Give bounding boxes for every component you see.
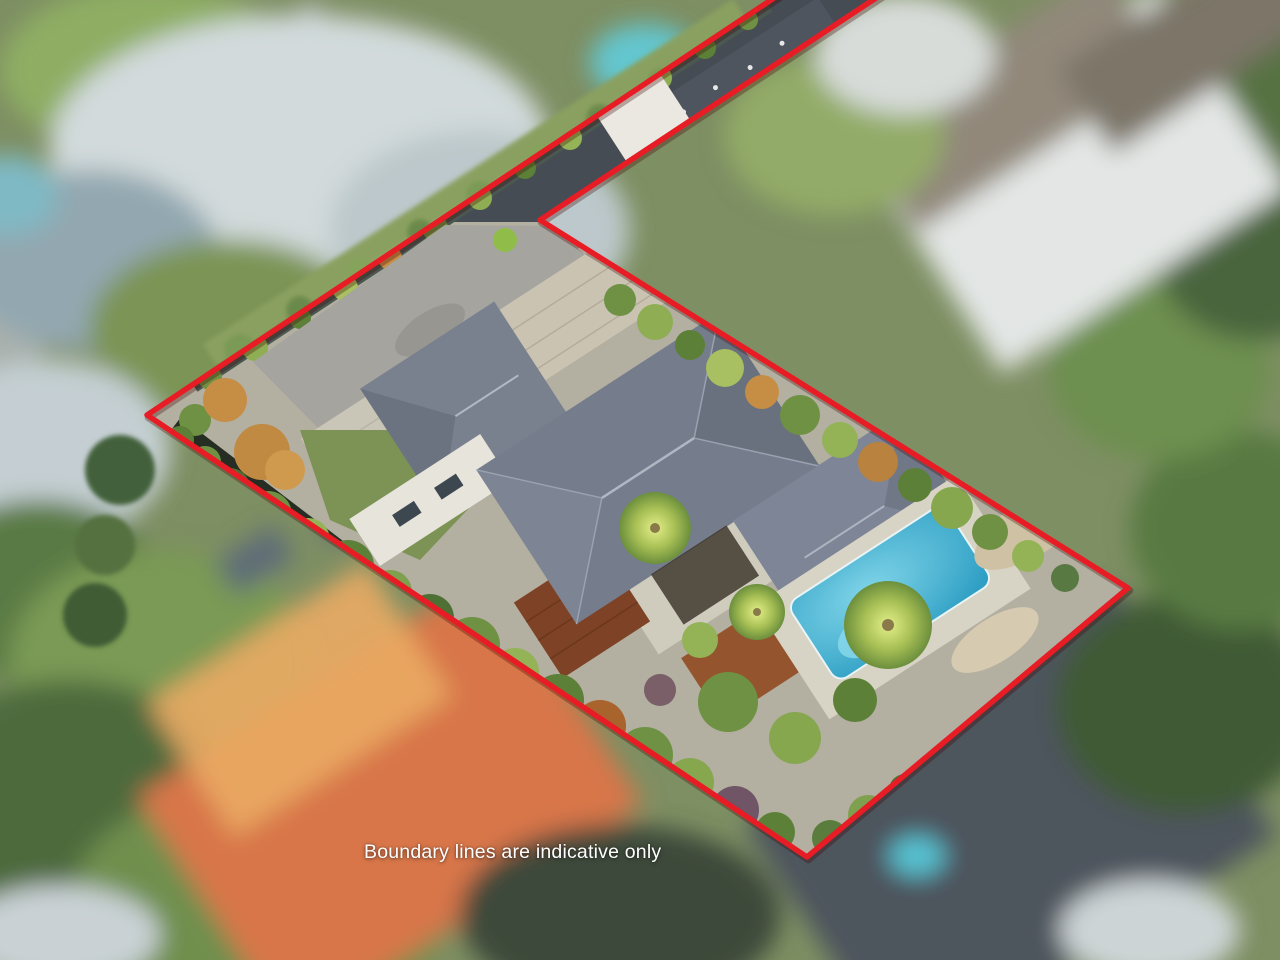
palm-tree-2 <box>619 492 691 564</box>
aerial-photo: Boundary lines are indicative only <box>0 0 1280 960</box>
aerial-photo-canvas <box>0 0 1280 960</box>
palm-tree-large <box>844 581 932 669</box>
small-pool-neighbor <box>889 836 945 876</box>
palm-tree-3 <box>729 584 785 640</box>
boundary-disclaimer: Boundary lines are indicative only <box>364 841 661 864</box>
